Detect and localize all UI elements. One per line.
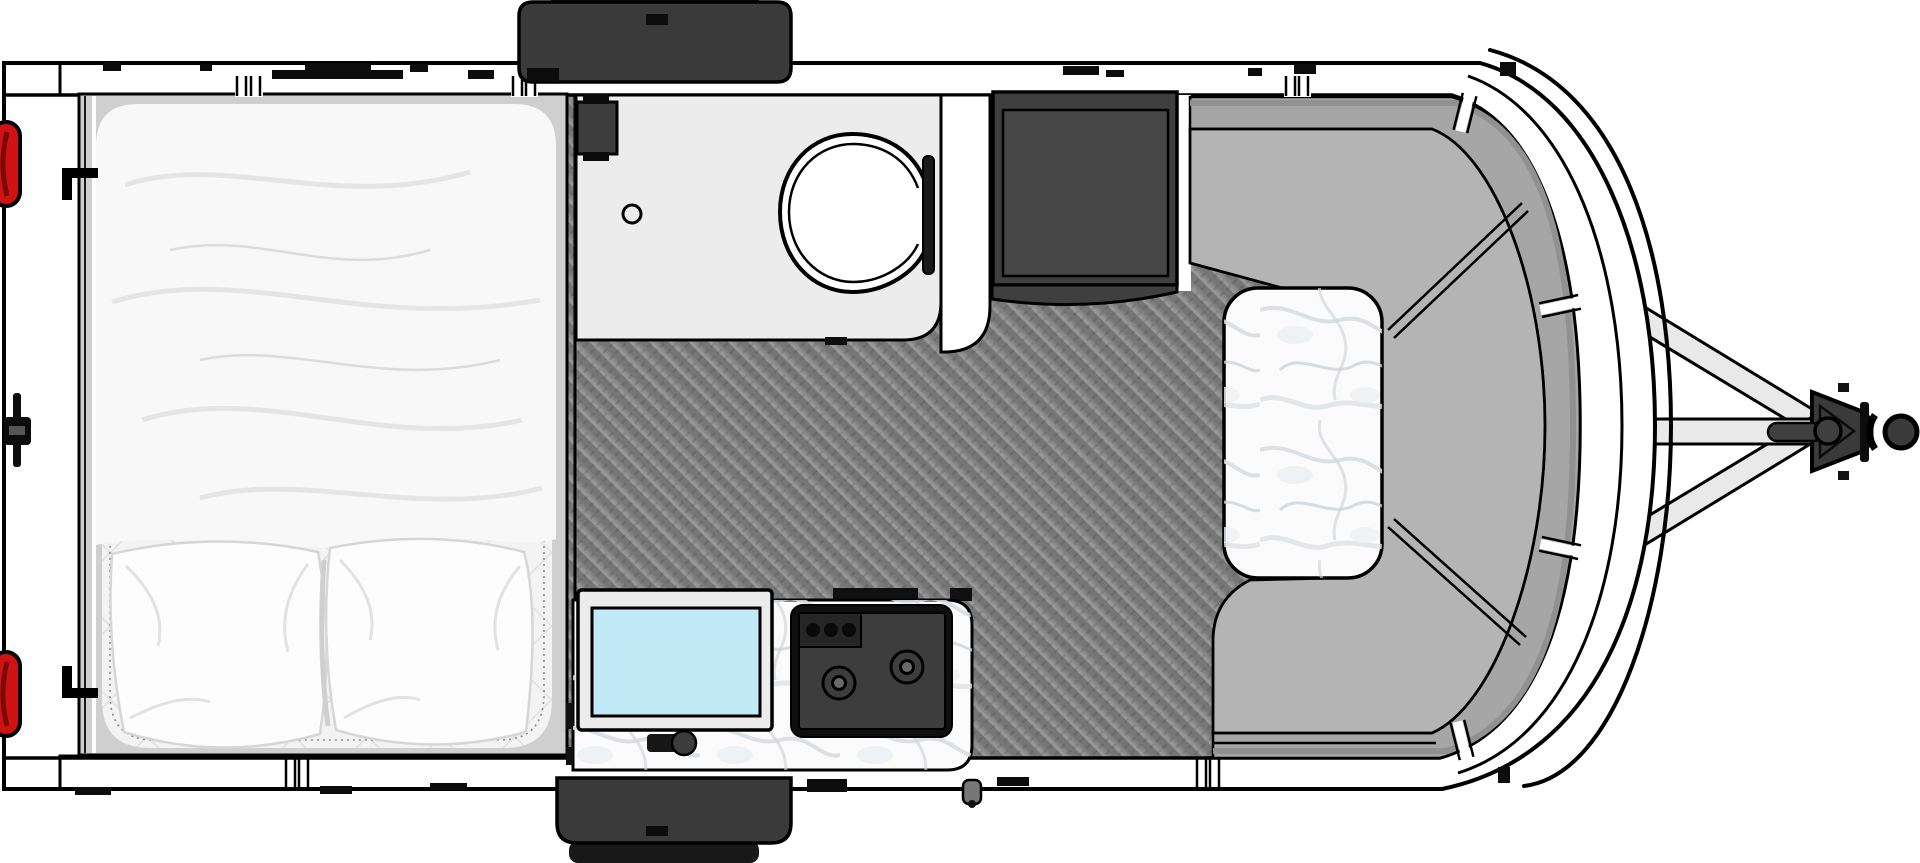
shower-mount-bottom (583, 152, 609, 161)
bathroom-wall-band (941, 95, 990, 352)
bathroom-threshold-tick (825, 337, 847, 345)
toilet-flush-plate (923, 156, 934, 274)
stove-knob (824, 623, 838, 637)
bed (62, 94, 567, 755)
counter-hinge-mark (566, 703, 573, 729)
floorplan-page (0, 0, 1920, 863)
dinette (1190, 93, 1581, 760)
roof-tab (1294, 64, 1316, 74)
jack-pin-head (1815, 418, 1841, 444)
wardrobe-cabinet (992, 92, 1191, 305)
nose-corner-step-top (1500, 62, 1516, 76)
shower-fixture (577, 102, 617, 154)
floorplan-canvas (0, 0, 1920, 863)
underbody-tab (320, 786, 352, 794)
burner-right-center (901, 661, 914, 674)
faucet-knob (672, 731, 696, 755)
hitch-ball (1885, 416, 1917, 448)
slot-pair (1284, 74, 1311, 97)
ac-vent (646, 826, 668, 836)
roof-tab (1063, 66, 1099, 75)
roof-tab (103, 62, 121, 71)
nose-corner-step-bottom (1498, 767, 1510, 783)
roof-rail-step (305, 63, 371, 72)
stove-knob (806, 623, 820, 637)
roof-unit-top (519, 0, 791, 82)
table-marble-texture (1224, 288, 1382, 578)
roof-tab (200, 64, 212, 71)
ac-vent (646, 14, 668, 25)
coupler-nub-bottom (1838, 471, 1849, 480)
counter-hinge-mark (566, 747, 573, 765)
shower-mount-top (583, 94, 609, 104)
roof-tab (1106, 70, 1124, 77)
coupler-nub-top (1838, 383, 1849, 392)
underbody-tab (997, 777, 1029, 786)
handle-detail (9, 426, 25, 435)
pillow-left (111, 541, 329, 747)
blanket (96, 104, 556, 548)
dinette-table (1224, 288, 1382, 578)
stove-knob (842, 623, 856, 637)
burner-left-center (833, 677, 846, 690)
bathroom (576, 94, 990, 352)
sink-basin (592, 608, 760, 716)
roof-tab (410, 64, 428, 72)
ac-body-bottom (557, 778, 791, 843)
roof-tab (468, 70, 494, 79)
slot-pair (235, 74, 263, 97)
roof-unit-bottom (557, 778, 791, 863)
underbody-tab (807, 779, 847, 792)
drain-spout-tip (968, 800, 976, 808)
drain-spout (963, 780, 981, 808)
cabinet-door (1003, 110, 1168, 276)
roof-tab (1248, 68, 1262, 76)
underbody-tab (75, 787, 111, 795)
ac-tab (527, 68, 559, 82)
pillow-right (326, 539, 532, 745)
kitchen (566, 588, 972, 770)
underbody-tab (430, 783, 467, 790)
